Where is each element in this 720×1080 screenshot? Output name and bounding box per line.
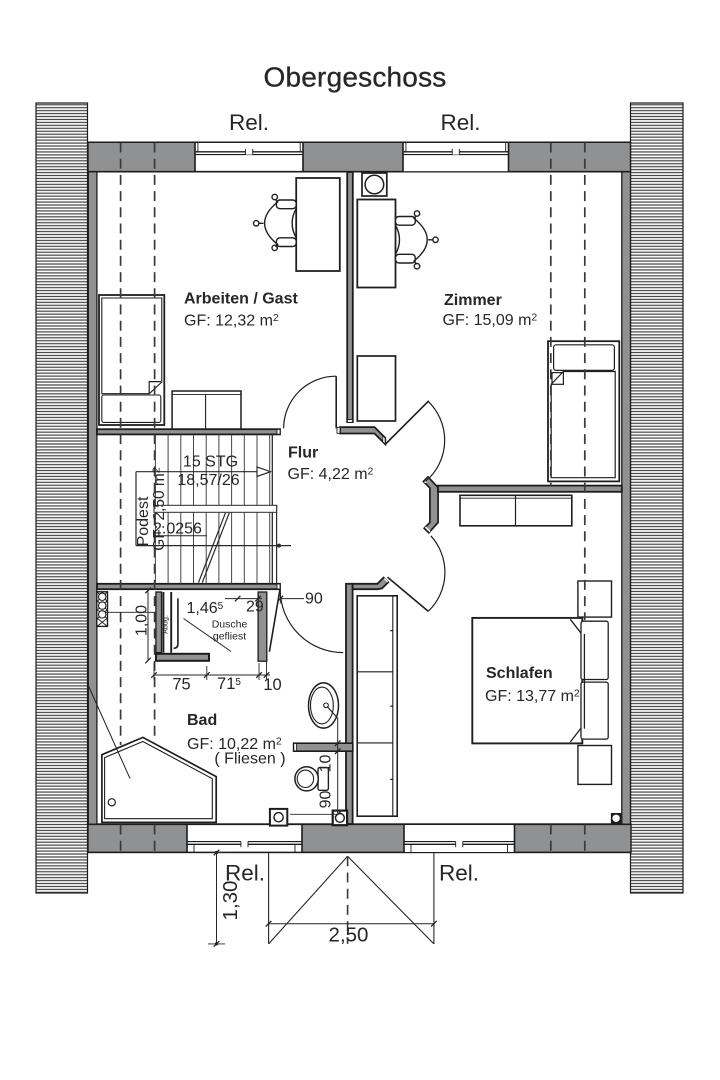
svg-text:75: 75 — [172, 675, 190, 693]
svg-text:10: 10 — [318, 755, 335, 773]
svg-text:29: 29 — [246, 599, 264, 616]
svg-text:Rel.: Rel. — [225, 861, 265, 886]
svg-text:gefliest: gefliest — [213, 631, 246, 643]
svg-text:Rel.: Rel. — [229, 110, 269, 135]
svg-text:Abdg.: Abdg. — [161, 615, 170, 634]
svg-text:18,57/26: 18,57/26 — [177, 472, 239, 489]
svg-text:GF: 2,50 m2: GF: 2,50 m2 — [151, 467, 169, 551]
svg-text:Rel.: Rel. — [441, 110, 481, 135]
svg-text:Zimmer: Zimmer — [444, 292, 502, 309]
svg-text:1,30: 1,30 — [219, 881, 242, 921]
svg-text:1,00: 1,00 — [133, 605, 150, 636]
svg-text:Dusche: Dusche — [212, 618, 248, 630]
svg-text:Schlafen: Schlafen — [486, 665, 553, 682]
svg-text:15 STG: 15 STG — [183, 454, 238, 471]
svg-text:GF: 15,09 m2: GF: 15,09 m2 — [443, 312, 538, 330]
svg-text:Rel.: Rel. — [439, 861, 479, 886]
svg-text:2,50: 2,50 — [329, 924, 369, 947]
svg-text:Obergeschoss: Obergeschoss — [264, 62, 447, 93]
svg-text:Flur: Flur — [288, 445, 318, 462]
svg-text:2.0256: 2.0256 — [153, 521, 202, 538]
svg-text:Podest: Podest — [135, 496, 152, 546]
svg-text:Arbeiten / Gast: Arbeiten / Gast — [184, 291, 298, 308]
svg-text:( Fliesen ): ( Fliesen ) — [214, 751, 285, 768]
svg-text:90: 90 — [318, 791, 335, 809]
svg-text:10: 10 — [263, 676, 281, 694]
svg-text:GF: 4,22 m2: GF: 4,22 m2 — [288, 466, 374, 484]
svg-text:90: 90 — [305, 591, 323, 608]
svg-text:Bad: Bad — [187, 712, 217, 729]
svg-text:GF: 12,32 m2: GF: 12,32 m2 — [184, 312, 279, 330]
svg-text:GF: 13,77 m2: GF: 13,77 m2 — [485, 688, 580, 706]
